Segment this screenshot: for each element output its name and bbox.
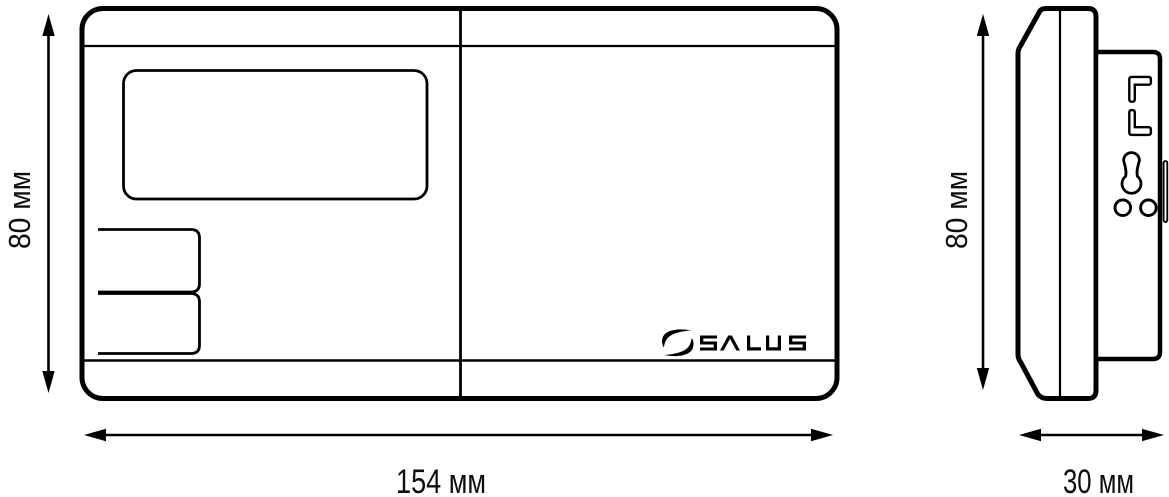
svg-text:80 мм: 80 мм — [2, 171, 37, 249]
svg-text:80 мм: 80 мм — [939, 171, 974, 249]
svg-text:30 мм: 30 мм — [1063, 463, 1134, 497]
svg-text:154 мм: 154 мм — [396, 463, 486, 497]
